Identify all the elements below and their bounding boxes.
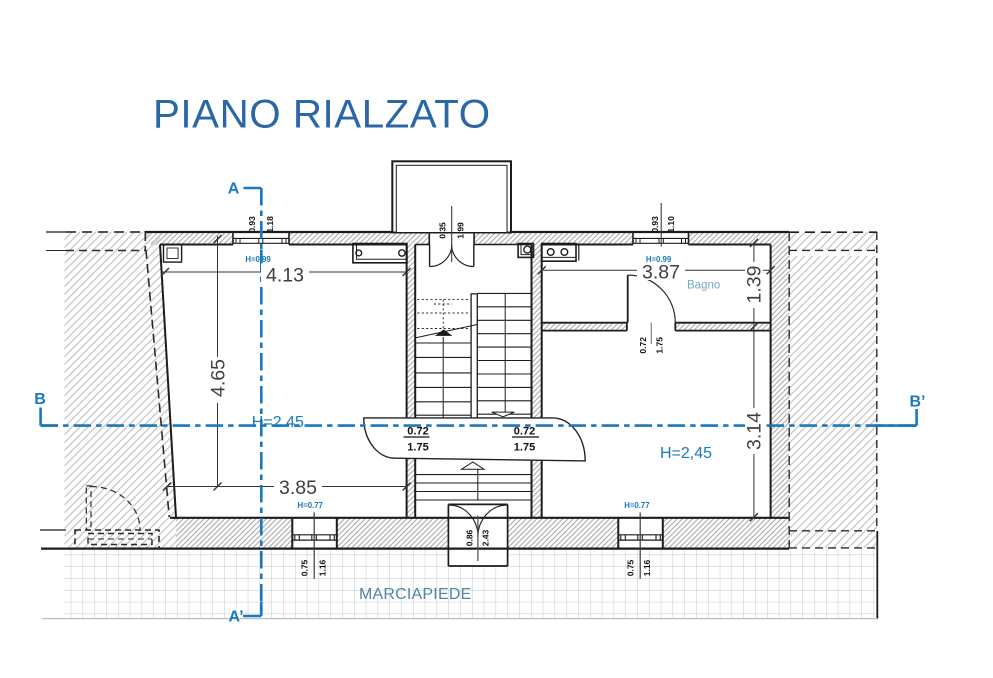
- svg-text:4.13: 4.13: [266, 265, 304, 287]
- svg-text:0.93: 0.93: [650, 216, 660, 233]
- svg-text:H=0.99: H=0.99: [245, 255, 271, 264]
- svg-text:1.75: 1.75: [514, 442, 535, 454]
- svg-text:A’: A’: [228, 609, 243, 626]
- svg-text:3.14: 3.14: [743, 412, 765, 450]
- svg-text:0.72: 0.72: [514, 426, 535, 438]
- svg-text:1.39: 1.39: [743, 266, 765, 304]
- svg-text:1.75: 1.75: [407, 442, 428, 454]
- svg-text:1.16: 1.16: [642, 559, 652, 576]
- svg-text:B’: B’: [910, 394, 926, 411]
- svg-text:4.65: 4.65: [208, 359, 230, 397]
- svg-text:MARCIAPIEDE: MARCIAPIEDE: [359, 586, 471, 603]
- svg-text:0.75: 0.75: [625, 559, 635, 576]
- svg-text:1.16: 1.16: [317, 559, 327, 576]
- svg-text:1.18: 1.18: [265, 216, 275, 233]
- svg-text:PIANO RIALZATO: PIANO RIALZATO: [153, 92, 491, 137]
- svg-text:1.99: 1.99: [456, 222, 466, 239]
- svg-text:3.87: 3.87: [642, 262, 680, 284]
- svg-text:B: B: [34, 391, 46, 408]
- svg-text:H=0.77: H=0.77: [624, 501, 649, 510]
- svg-text:0.75: 0.75: [299, 559, 309, 576]
- svg-text:H=2,45: H=2,45: [660, 445, 712, 462]
- svg-text:H=2.45: H=2.45: [252, 414, 304, 431]
- svg-text:2.43: 2.43: [480, 529, 490, 546]
- svg-text:1.10: 1.10: [666, 216, 676, 233]
- svg-text:0.86: 0.86: [464, 529, 474, 546]
- svg-text:H=0.99: H=0.99: [646, 255, 672, 264]
- svg-text:0.72: 0.72: [407, 426, 428, 438]
- svg-text:0.93: 0.93: [247, 216, 257, 233]
- svg-text:0.72: 0.72: [638, 337, 648, 354]
- svg-text:A: A: [228, 181, 240, 198]
- svg-text:1.75: 1.75: [655, 337, 665, 354]
- svg-text:0.35: 0.35: [437, 222, 447, 239]
- svg-text:Bagno: Bagno: [687, 280, 720, 292]
- svg-text:H=0.77: H=0.77: [298, 501, 323, 510]
- svg-text:3.85: 3.85: [279, 477, 317, 499]
